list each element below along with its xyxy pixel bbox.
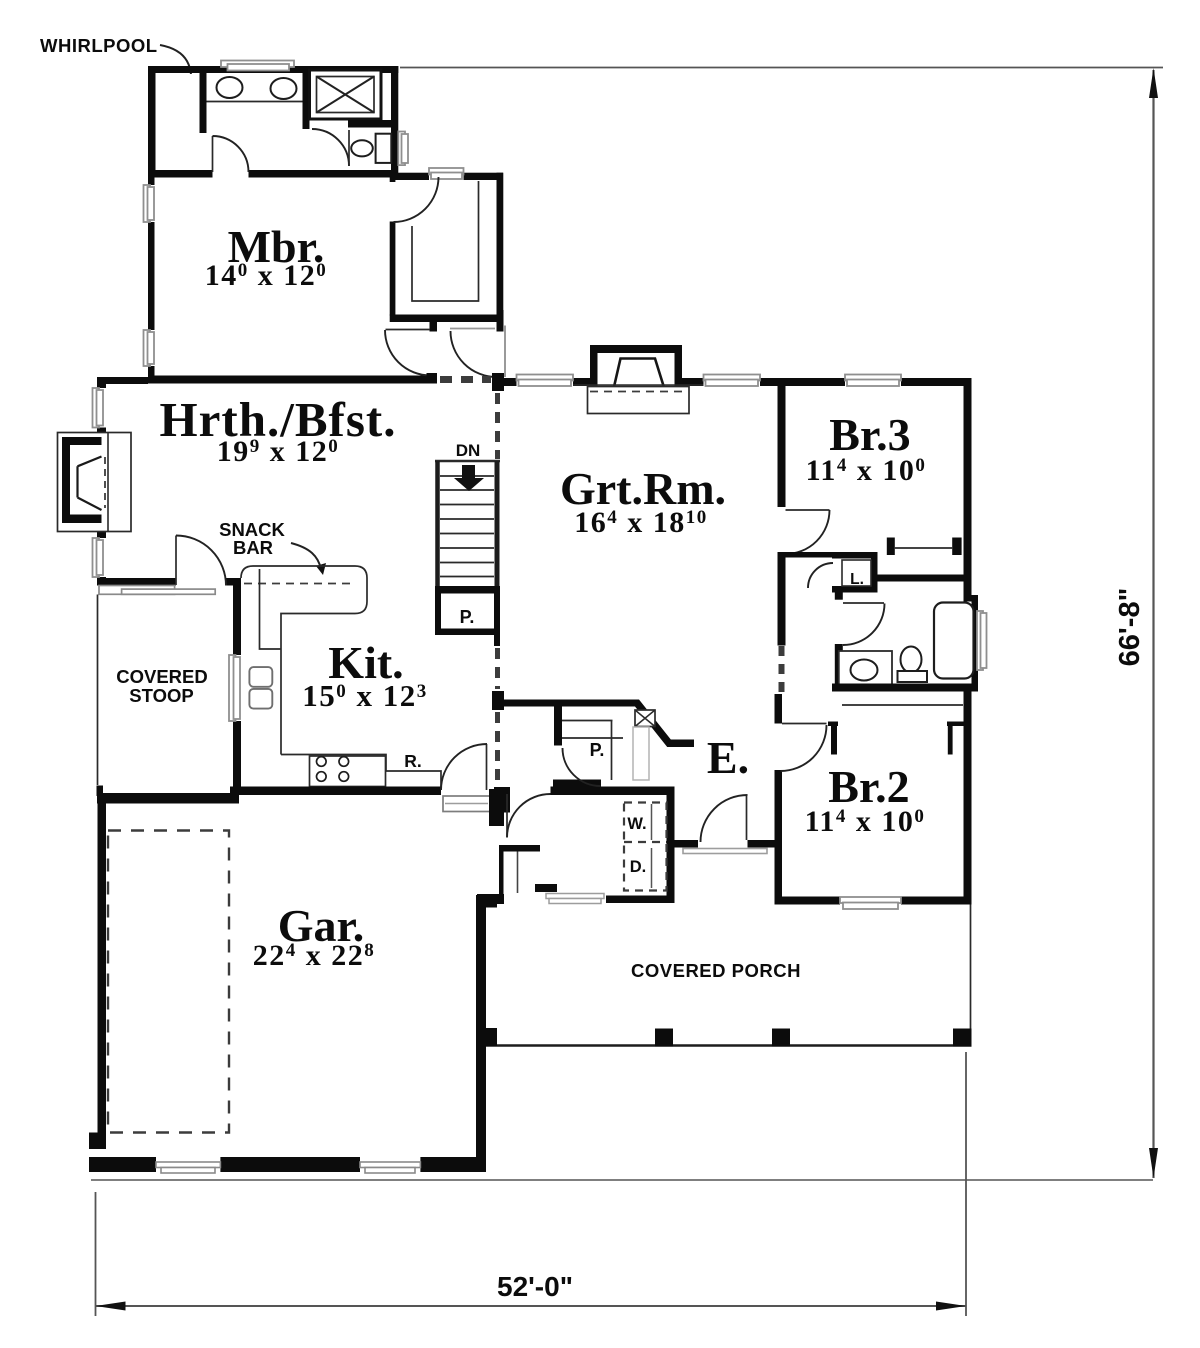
svg-text:66'-8": 66'-8"	[1114, 588, 1146, 667]
svg-text:224 x 228: 224 x 228	[253, 939, 376, 972]
svg-text:150 x 123: 150 x 123	[302, 678, 428, 713]
svg-text:199 x 120: 199 x 120	[217, 435, 340, 468]
svg-text:140 x 120: 140 x 120	[205, 259, 328, 292]
svg-text:L.: L.	[850, 571, 864, 588]
svg-text:114 x 100: 114 x 100	[806, 454, 927, 487]
svg-text:COVERED PORCH: COVERED PORCH	[631, 960, 801, 981]
svg-text:STOOP: STOOP	[129, 685, 193, 706]
svg-text:52'-0": 52'-0"	[497, 1271, 573, 1302]
svg-text:WHIRLPOOL: WHIRLPOOL	[40, 35, 158, 56]
svg-text:P.: P.	[590, 740, 605, 760]
svg-text:COVERED: COVERED	[116, 666, 208, 687]
svg-text:BAR: BAR	[233, 537, 273, 558]
svg-text:R.: R.	[404, 751, 422, 771]
svg-text:E.: E.	[707, 732, 749, 783]
svg-text:W.: W.	[627, 815, 646, 833]
svg-text:P.: P.	[460, 607, 475, 627]
svg-text:114 x 100: 114 x 100	[805, 805, 926, 838]
svg-text:D.: D.	[630, 858, 647, 876]
svg-text:DN: DN	[456, 441, 481, 460]
svg-text:Br.3: Br.3	[829, 409, 910, 460]
